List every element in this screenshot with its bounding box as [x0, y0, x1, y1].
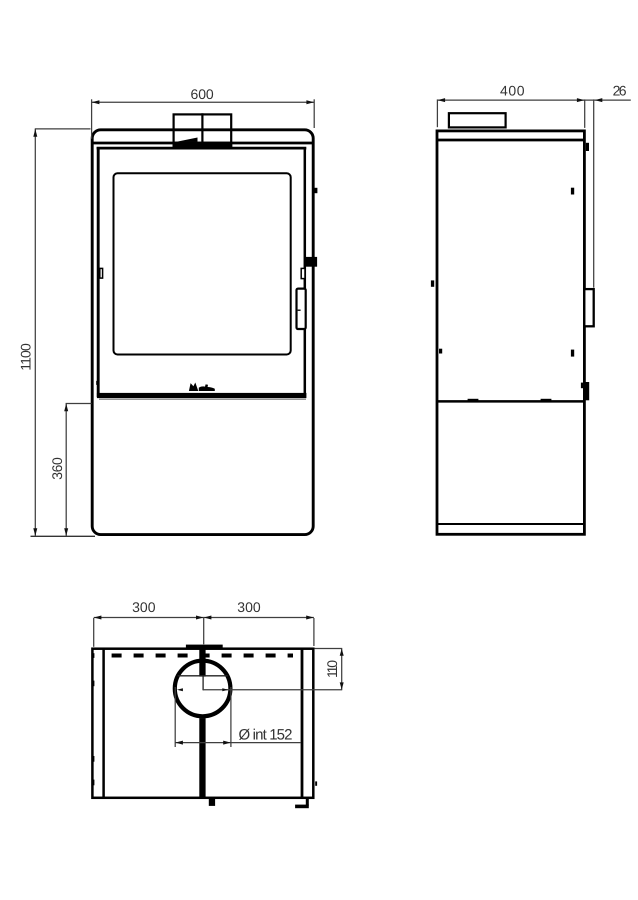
svg-text:360: 360	[49, 457, 65, 480]
svg-text:300: 300	[237, 599, 261, 615]
svg-text:300: 300	[132, 599, 156, 615]
svg-text:400: 400	[500, 83, 525, 99]
svg-text:1100: 1100	[18, 343, 34, 371]
svg-text:Ø int 152: Ø int 152	[239, 726, 293, 743]
svg-text:600: 600	[191, 86, 214, 102]
svg-text:26: 26	[613, 83, 627, 99]
svg-text:110: 110	[324, 660, 340, 678]
